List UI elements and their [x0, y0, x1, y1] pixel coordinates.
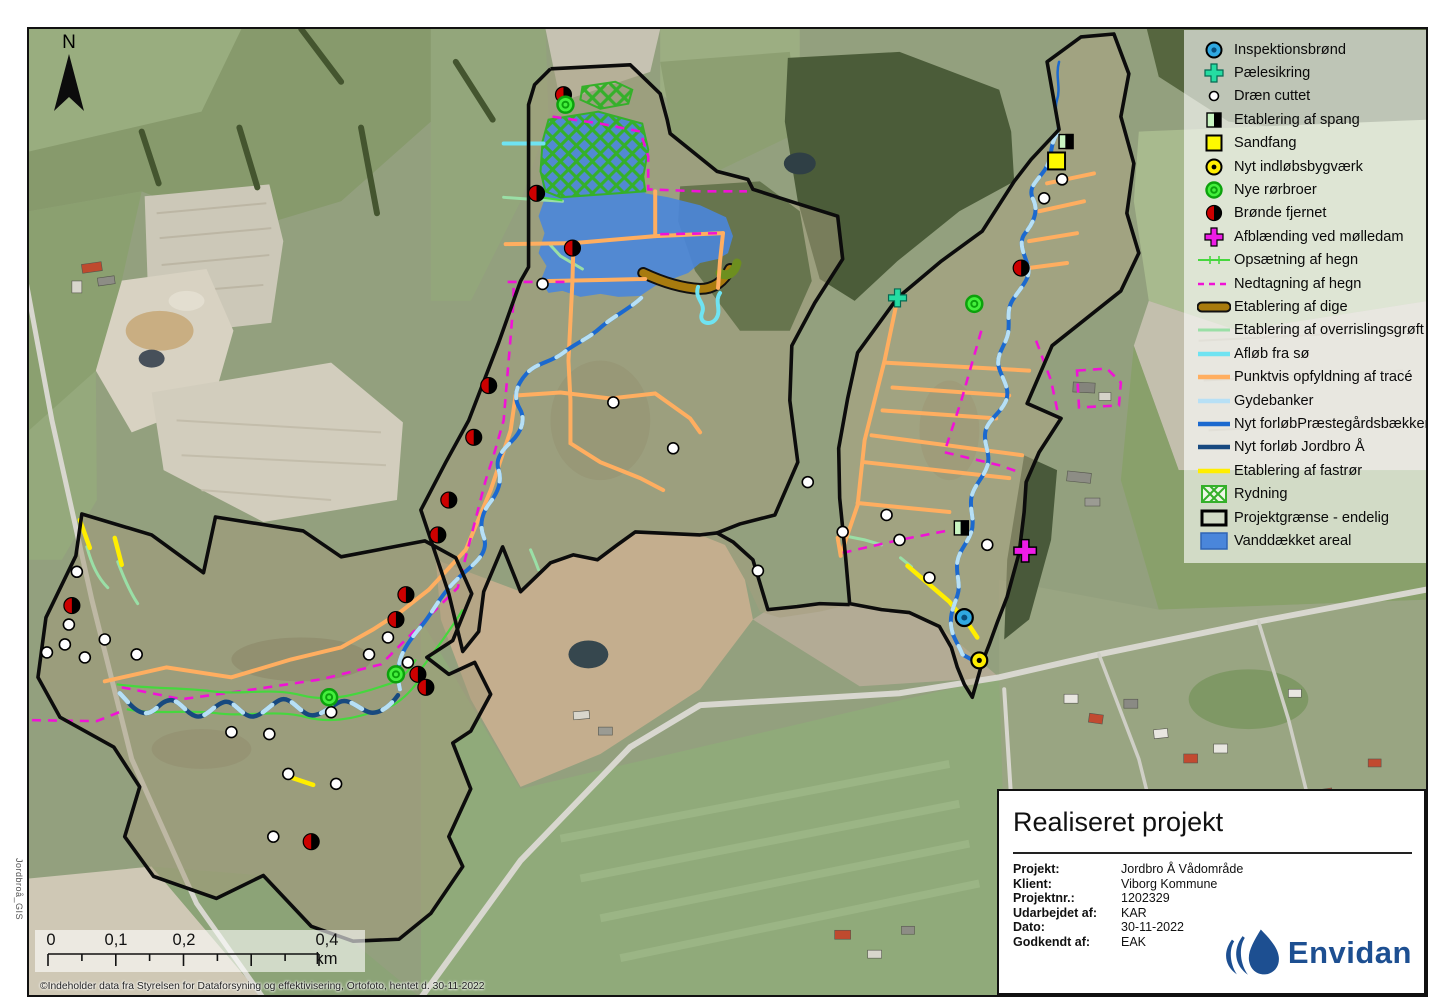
- title-block: Realiseret projekt Projekt: Jordbro Å Vå…: [997, 789, 1426, 995]
- north-arrow: N: [47, 32, 91, 117]
- legend-item-bronde-fjernet: Brønde fjernet: [1194, 202, 1418, 225]
- legend-item-paelesikring: Pælesikring: [1194, 61, 1418, 84]
- rydning-icon: [1194, 484, 1234, 504]
- envidan-logo-text: Envidan: [1288, 935, 1412, 971]
- legend-item-gydebanker: Gydebanker: [1194, 389, 1418, 412]
- legend-item-fastror: Etablering af fastrør: [1194, 459, 1418, 482]
- paelesikring-icon: [1194, 63, 1234, 83]
- legend-item-overrislingsgroft: Etablering af overrislingsgrøft: [1194, 319, 1418, 342]
- north-arrow-icon: [52, 54, 86, 112]
- aflob-fra-so-icon: [1194, 344, 1234, 364]
- sandfang-icon: [1194, 133, 1234, 153]
- projektgraense-icon: [1194, 508, 1234, 528]
- title-block-row-udarbejdet: Udarbejdet af: KAR: [1013, 906, 1412, 921]
- legend-item-draen-cuttet: Dræn cuttet: [1194, 85, 1418, 108]
- legend-item-dige: Etablering af dige: [1194, 295, 1418, 318]
- envidan-logo: Envidan: [1224, 927, 1412, 979]
- map-legend: Inspektionsbrønd Pælesikring Dræn cuttet…: [1184, 30, 1426, 563]
- legend-item-opsaetning-hegn: Opsætning af hegn: [1194, 249, 1418, 272]
- bronde-fjernet-icon: [1194, 203, 1234, 223]
- scale-bar-ticks: [35, 930, 365, 972]
- legend-item-nedtagning-hegn: Nedtagning af hegn: [1194, 272, 1418, 295]
- copyright-text: ©Indeholder data fra Styrelsen for Dataf…: [40, 981, 485, 992]
- gydebanker-icon: [1194, 391, 1234, 411]
- overrislingsgroft-icon: [1194, 320, 1234, 340]
- legend-item-projektgraense: Projektgrænse - endelig: [1194, 506, 1418, 529]
- nye-rorbroer-icon: [1194, 180, 1234, 200]
- legend-item-afblaending: Afblænding ved mølledam: [1194, 225, 1418, 248]
- dige-icon: [1194, 297, 1234, 317]
- opsaetning-hegn-icon: [1194, 250, 1234, 270]
- legend-item-vanddaekket-areal: Vanddækket areal: [1194, 529, 1418, 552]
- title-block-heading: Realiseret projekt: [1013, 807, 1412, 838]
- title-block-row-projektnr: Projektnr.: 1202329: [1013, 891, 1412, 906]
- praestegardsbaekken-icon: [1194, 414, 1234, 434]
- punktvis-opfyldning-icon: [1194, 367, 1234, 387]
- afblaending-icon: [1194, 227, 1234, 247]
- map-frame: N Inspektionsbrønd Pælesikring Dræn cutt…: [27, 27, 1428, 997]
- title-block-row-projekt: Projekt: Jordbro Å Vådområde: [1013, 862, 1412, 877]
- indloebsbygvaerk-marker: [971, 652, 987, 668]
- nedtagning-hegn-icon: [1194, 274, 1234, 294]
- envidan-logo-icon: [1224, 927, 1280, 979]
- title-block-divider: [1013, 852, 1412, 854]
- side-label: Jordbroå_GIS: [14, 858, 24, 920]
- legend-item-inspektionsbrond: Inspektionsbrønd: [1194, 38, 1418, 61]
- legend-item-aflob-fra-so: Afløb fra sø: [1194, 342, 1418, 365]
- legend-item-spang: Etablering af spang: [1194, 108, 1418, 131]
- sandfang-marker: [1048, 152, 1065, 169]
- legend-item-nye-rorbroer: Nye rørbroer: [1194, 178, 1418, 201]
- vanddaekket-areal-icon: [1194, 531, 1234, 551]
- draen-cuttet-icon: [1194, 86, 1234, 106]
- legend-item-sandfang: Sandfang: [1194, 132, 1418, 155]
- north-label: N: [47, 32, 91, 54]
- spang-icon: [1194, 110, 1234, 130]
- jordbro-a-icon: [1194, 437, 1234, 457]
- legend-item-nyt-forlob-jordbro-a: Nyt forløb Jordbro Å: [1194, 436, 1418, 459]
- legend-item-nyt-forlob-praestegardsbaekken: Nyt forløbPræstegårdsbækken: [1194, 412, 1418, 435]
- inspektionsbrond-icon: [1194, 40, 1234, 60]
- scale-bar: 0 0,1 0,2 0,4 km: [35, 930, 365, 972]
- title-block-row-klient: Klient: Viborg Kommune: [1013, 877, 1412, 892]
- legend-item-indlobsbygvaerk: Nyt indløbsbygværk: [1194, 155, 1418, 178]
- legend-item-punktvis-opfyldning: Punktvis opfyldning af tracé: [1194, 365, 1418, 388]
- inspektionsbroend-marker: [956, 609, 973, 626]
- fastror-icon: [1194, 461, 1234, 481]
- indlobsbygvaerk-icon: [1194, 157, 1234, 177]
- legend-item-rydning: Rydning: [1194, 482, 1418, 505]
